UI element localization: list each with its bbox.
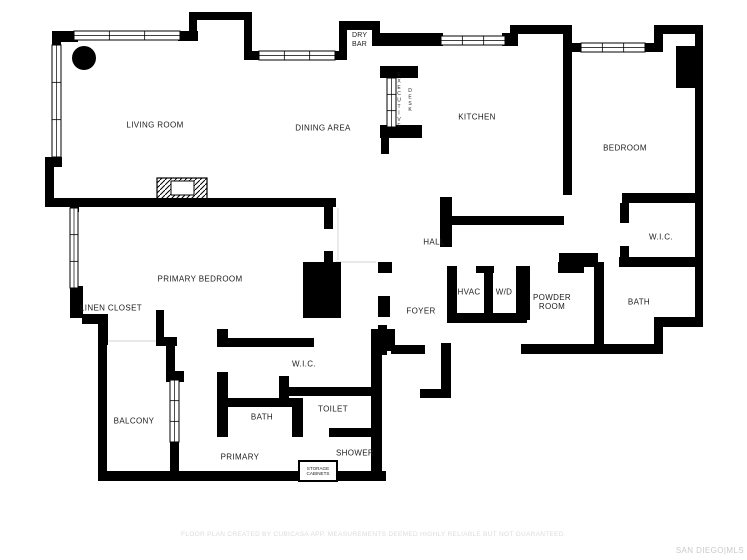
wall-segments bbox=[45, 12, 703, 481]
column-symbol bbox=[72, 46, 96, 70]
room-label-dining-area: DINING AREA bbox=[295, 124, 350, 133]
room-label-primary-wic: W.I.C. bbox=[292, 360, 316, 369]
room-label-toilet: TOILET bbox=[318, 405, 348, 414]
room-label-bedroom-wic: W.I.C. bbox=[649, 233, 673, 242]
room-label-primary-bath: BATH bbox=[251, 413, 273, 422]
floor-plan-canvas: LIVING ROOM DINING AREA DRY BAR EXECUTIV… bbox=[0, 0, 747, 560]
room-label-washer-dryer: W/D bbox=[496, 288, 513, 297]
disclaimer-text: FLOOR PLAN CREATED BY CUBICASA APP. MEAS… bbox=[181, 531, 566, 538]
room-label-dry-bar: DRY BAR bbox=[352, 32, 378, 49]
desk-label-executive: EXECUTIVE bbox=[396, 72, 402, 130]
room-label-shower: SHOWER bbox=[336, 449, 374, 458]
room-label-powder-room: POWDER ROOM bbox=[527, 293, 577, 311]
room-label-linen-closet: LINEN CLOSET bbox=[80, 304, 142, 313]
room-label-primary-bedroom: PRIMARY BEDROOM bbox=[158, 275, 243, 284]
room-label-balcony: BALCONY bbox=[114, 417, 155, 426]
room-label-hall: HALL bbox=[423, 238, 444, 247]
room-label-hvac: HVAC bbox=[457, 288, 480, 297]
mls-watermark: SAN DIEGO|MLS bbox=[676, 546, 744, 555]
floor-plan-drawing bbox=[0, 0, 747, 560]
desk-label-desk: DESK bbox=[407, 88, 413, 114]
room-label-storage-cabinets: STORAGE CABINETS bbox=[298, 466, 338, 476]
room-label-bedroom: BEDROOM bbox=[603, 144, 647, 153]
room-label-primary: PRIMARY bbox=[221, 453, 260, 462]
fireplace-symbol bbox=[157, 178, 207, 200]
window-symbols bbox=[52, 31, 645, 442]
room-label-kitchen: KITCHEN bbox=[458, 113, 496, 122]
room-label-bedroom-bath: BATH bbox=[628, 298, 650, 307]
room-label-living-room: LIVING ROOM bbox=[126, 121, 183, 130]
room-label-foyer: FOYER bbox=[406, 307, 435, 316]
